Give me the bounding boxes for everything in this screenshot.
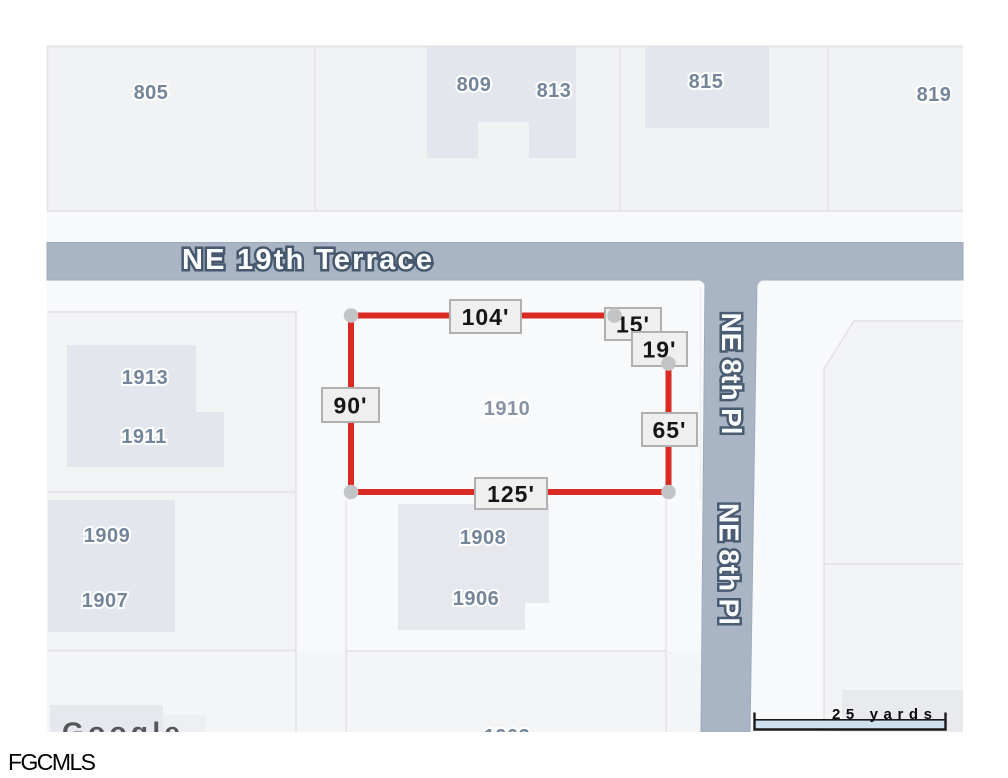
- svg-text:1910: 1910: [484, 398, 531, 420]
- svg-text:1909: 1909: [84, 525, 131, 547]
- svg-text:1913: 1913: [122, 367, 169, 389]
- svg-text:NE 8th Pl: NE 8th Pl: [716, 313, 747, 435]
- svg-text:NE 19th Terrace: NE 19th Terrace: [182, 244, 432, 276]
- svg-text:FGCMLS: FGCMLS: [8, 749, 96, 775]
- svg-text:1911: 1911: [121, 426, 166, 448]
- svg-text:805: 805: [134, 82, 169, 104]
- svg-text:65': 65': [652, 417, 686, 443]
- svg-text:815: 815: [689, 71, 724, 93]
- svg-text:90': 90': [333, 393, 367, 419]
- svg-text:NE 8th Pl: NE 8th Pl: [714, 503, 745, 625]
- svg-text:1907: 1907: [82, 590, 129, 612]
- svg-text:125': 125': [487, 481, 535, 507]
- svg-text:813: 813: [537, 80, 572, 102]
- svg-text:819: 819: [917, 84, 952, 106]
- svg-text:104': 104': [462, 304, 510, 330]
- svg-text:1908: 1908: [460, 527, 507, 549]
- svg-text:25 yards: 25 yards: [832, 706, 934, 723]
- svg-text:809: 809: [457, 74, 492, 96]
- svg-text:1906: 1906: [453, 588, 500, 610]
